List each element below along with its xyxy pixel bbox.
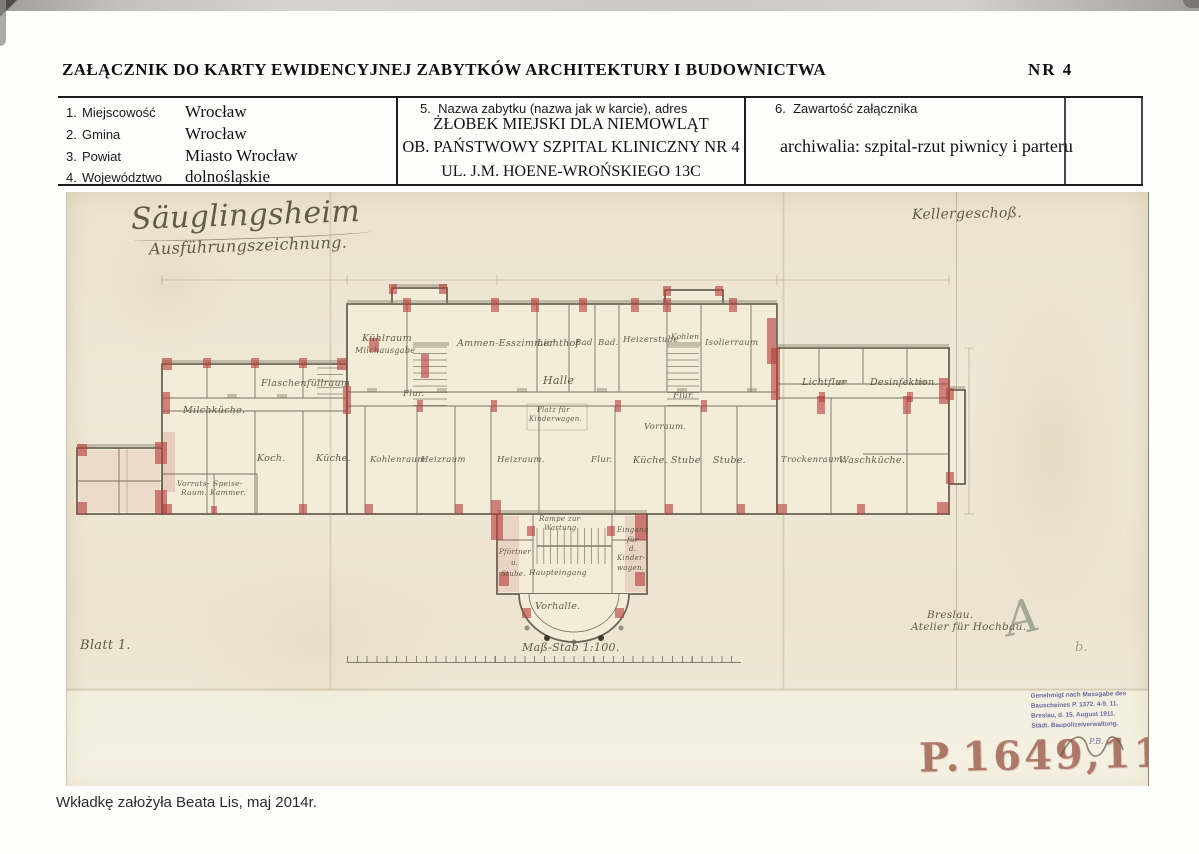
room-label: Milchausgabe [355,346,415,355]
room-label: Lichthof [537,338,579,349]
room-label: Desinfektion. [870,377,938,388]
scale-caption: Maß-Stab 1:100. [522,641,620,654]
room-label: Kohlen [671,332,699,341]
room-label: u. [511,559,518,567]
room-label: Bad [575,338,593,348]
field-label: Zawartość załącznika [793,101,917,116]
room-label: Flur. [403,389,424,399]
room-label: Kinder- [617,554,645,562]
form-row-gmina: 2.GminaWrocław [66,124,247,144]
field-value: Wrocław [185,124,247,143]
room-label: Flur. [673,391,694,401]
room-label: Küche. [316,453,351,464]
room-label: Bad. [598,338,619,348]
room-label: Küche. [633,455,668,466]
room-label: d. [629,545,636,553]
room-label: Wartung [544,524,577,532]
scan-edge-left [0,0,6,46]
room-label: Platz für [537,406,570,414]
room-label: Waschküche. [839,455,905,466]
archivist-note: Wkładkę założyła Beata Lis, maj 2014r. [56,794,317,811]
room-label: Heizraum. [497,455,545,465]
room-label: wagen. [617,564,644,572]
form-row-wojewodztwo: 4.Województwodolnośląskie [66,167,270,187]
field-label: Powiat [82,149,185,164]
contents-header: 6. Zawartość załącznika [775,101,917,116]
room-label: Koch. [257,453,286,464]
room-label: Eingang [617,526,649,534]
field-number: 4. [66,170,82,185]
room-label: für [627,536,638,544]
room-label: Vorrats- [177,479,210,488]
room-label: Haupteingang [529,568,587,577]
room-label: Stube [671,455,701,466]
room-label: Stube. [501,570,526,578]
field-label: Gmina [82,127,185,142]
form-row-powiat: 3.PowiatMiasto Wrocław [66,146,298,166]
record-card-page: ZAŁĄCZNIK DO KARTY EWIDENCYJNEJ ZABYTKÓW… [0,0,1199,854]
field-label: Miejscowość [82,105,185,120]
field-value: Wrocław [185,102,247,121]
room-label: Raum. [181,488,207,497]
scan-edge-top [0,0,1199,11]
contents-value: archiwalia: szpital-rzut piwnicy i parte… [780,136,1073,157]
room-label: Pförtner [499,548,531,556]
form-divider [744,97,746,185]
room-label: Kohlenraum [370,455,426,465]
field-value: dolnośląskie [185,167,270,186]
room-label-layer: KühlraumMilchausgabeAmmen-EsszimmerLicht… [67,192,1148,786]
room-label: Rampe zur [539,515,580,523]
room-label: Halle [543,374,574,387]
approval-stamp: Genehmigt nach Massgabe desBauscheines P… [1031,688,1149,731]
header-rule [58,96,1143,98]
page-title: ZAŁĄCZNIK DO KARTY EWIDENCYJNEJ ZABYTKÓW… [62,60,826,80]
atelier-note: Breslau. [927,609,973,621]
room-label: Speise- [213,479,243,488]
form-row-miejscowosc: 1.MiejscowośćWrocław [66,102,247,122]
room-label: Kühlraum [362,333,412,344]
room-label: Milchküche. [183,405,246,416]
room-label: Kinderwagen. [529,415,582,423]
field-number: 3. [66,149,82,164]
monument-name-line: OB. PAŃSTWOWY SZPITAL KLINICZNY NR 4 [398,137,744,157]
room-label: Heizraum [421,455,466,465]
room-label: Vorraum. [644,422,686,432]
room-label: Trockenraum. [781,455,845,465]
scale-ruler [347,656,741,663]
sheet-number: Blatt 1. [80,638,131,653]
archival-drawing-sheet: Säuglingsheim Ausführungszeichnung. Kell… [66,192,1149,786]
room-label: Flur. [591,455,612,465]
room-label: Vorhalle. [535,601,580,612]
field-number: 2. [66,127,82,142]
monument-name-line: ŻŁOBEK MIEJSKI DLA NIEMOWLĄT [398,114,744,134]
field-value: Miasto Wrocław [185,146,298,165]
room-label: Stube. [713,455,746,466]
monument-address-line: UL. J.M. HOENE-WROŃSKIEGO 13C [398,163,744,181]
room-label: Lichtflur [802,377,847,388]
page-number: NR 4 [1028,60,1073,80]
room-label: Flaschenfüllraum [261,378,350,389]
field-label: Województwo [82,170,185,185]
form-divider [1141,97,1143,185]
room-label: Isolierraum [705,338,758,348]
pencil-note: b. [1075,640,1087,655]
field-number: 1. [66,105,82,120]
field-number: 6. [775,101,786,116]
signature-flourish [1057,730,1127,766]
room-label: Kammer. [210,488,246,497]
